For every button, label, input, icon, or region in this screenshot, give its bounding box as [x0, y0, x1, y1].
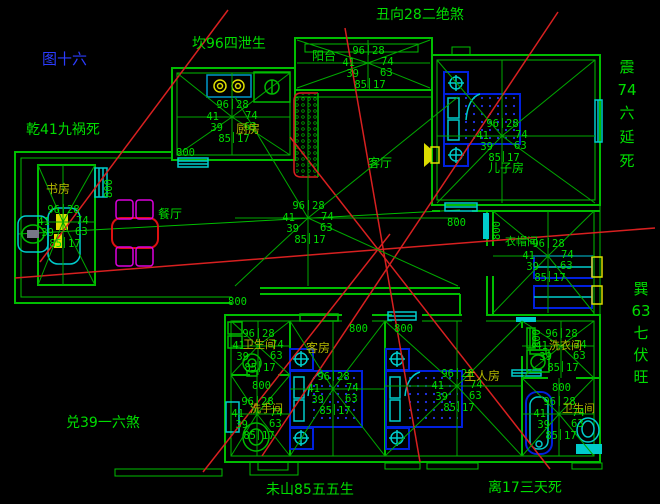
plant-strip: [294, 93, 318, 177]
top-wall-step: [452, 47, 470, 55]
room-label-study: 书房: [46, 181, 70, 196]
star-number-kitchen: 96: [216, 99, 229, 111]
star-number-bath_a: 85: [244, 362, 257, 374]
compass-label-right-upper: 延: [619, 128, 634, 146]
door-width-label: 800: [531, 329, 543, 348]
door-width-label: 800: [252, 380, 271, 392]
star-number-closet: 85: [534, 272, 547, 284]
door-width-label: 800: [491, 221, 503, 240]
dining-table: [112, 218, 158, 248]
star-number-master: 17: [462, 402, 475, 414]
star-number-bath_br: 85: [545, 430, 558, 442]
door-width-label: 800: [103, 179, 115, 198]
figure-number: 图十六: [42, 50, 87, 68]
room-label-closet: 衣帽间: [505, 234, 538, 248]
nightstand-lamp-icon: [444, 144, 468, 166]
room-label-master: 主人房: [464, 368, 500, 383]
compass-label-right-lower: 旺: [633, 368, 648, 386]
compass-label-top-left: 坎96四泄生: [192, 36, 266, 52]
door-width-label: 800: [394, 323, 413, 335]
compass-label-bottom-center: 未山85五五生: [266, 482, 354, 498]
star-number-living: 96: [292, 200, 305, 212]
stove-icon: [207, 75, 251, 97]
star-number-living: 63: [320, 222, 333, 234]
living-bottom-wall: [260, 288, 460, 315]
star-number-living: 85: [294, 234, 307, 246]
porch-ledge-2: [427, 463, 478, 469]
star-number-master: 96: [441, 368, 454, 380]
closet-right-wall: [594, 205, 600, 315]
compass-label-right-lower: 伏: [633, 346, 648, 364]
room-label-laundry: 洗衣间: [549, 338, 582, 352]
door-width-label: 800: [176, 147, 195, 159]
room-label-bath-a: 卫生间: [243, 337, 276, 351]
compass-label-right-upper: 六: [619, 104, 634, 122]
door-width-label: 800: [228, 296, 247, 308]
star-number-bath_br: 96: [543, 396, 556, 408]
star-number-master: 85: [443, 402, 456, 414]
nightstand-lamp-icon: [386, 349, 409, 370]
star-number-bath_a: 17: [263, 362, 276, 374]
compass-label-bottom-right: 离17三天死: [488, 479, 562, 496]
compass-label-left: 乾41九祸死: [26, 122, 100, 138]
star-number-balcony: 96: [352, 45, 365, 57]
porch-ledge-4: [115, 469, 222, 476]
compass-label-right-lower: 63: [631, 302, 650, 320]
window-icon: [388, 312, 416, 320]
floorplan-canvas: 9628417439638517962841743963851796284174…: [0, 0, 660, 504]
star-number-bath_b: 17: [262, 430, 275, 442]
door-panel: [483, 213, 489, 239]
star-number-son: 63: [514, 140, 527, 152]
compass-label-top: 丑向28二绝煞: [376, 7, 464, 23]
nightstand-lamp-icon: [386, 428, 409, 449]
room-label-balcony: 阳台: [312, 48, 336, 63]
star-number-master: 63: [469, 390, 482, 402]
floorplan-drawing: 9628417439638517962841743963851796284174…: [0, 0, 660, 504]
star-number-bath_b: 63: [269, 418, 282, 430]
compass-label-right-upper: 74: [617, 81, 636, 99]
compass-label-right-lower: 七: [633, 324, 648, 342]
compass-label-right-upper: 死: [619, 152, 634, 170]
star-number-guest: 17: [338, 405, 351, 417]
compass-label-bottom-left: 兑39一六煞: [66, 415, 140, 431]
wardrobe: [534, 286, 602, 308]
star-number-guest: 96: [317, 371, 330, 383]
room-label-bath-b: 洗手间: [250, 401, 283, 415]
star-number-study: 17: [68, 238, 81, 250]
star-number-balcony: 85: [354, 79, 367, 91]
star-number-bath_br: 63: [571, 418, 584, 430]
star-number-study: 96: [47, 204, 60, 216]
door-width-label: 800: [349, 323, 368, 335]
star-number-study: 85: [49, 238, 62, 250]
star-number-bath_b: 85: [243, 430, 256, 442]
compass-label-right-lower: 巽: [633, 280, 648, 298]
dining-chairs: [116, 200, 153, 266]
star-number-closet: 63: [560, 260, 573, 272]
star-number-balcony: 63: [380, 67, 393, 79]
star-number-study: 63: [75, 226, 88, 238]
room-label-son: 儿子房: [488, 160, 524, 175]
compass-label-right-upper: 震: [619, 58, 634, 76]
room-label-kitchen: 厨房: [236, 121, 260, 136]
room-label-living: 客厅: [368, 155, 392, 170]
star-spoke-closet: [493, 256, 548, 313]
porch-ledge-3: [572, 463, 602, 469]
room-label-dining: 餐厅: [158, 206, 182, 221]
star-number-bath_br: 17: [564, 430, 577, 442]
door-panel: [516, 317, 536, 322]
star-number-closet: 17: [553, 272, 566, 284]
star-number-living: 17: [313, 234, 326, 246]
porch-ledge-1: [385, 463, 420, 469]
star-number-laundry: 17: [566, 362, 579, 374]
room-label-bath-br: 卫生间: [562, 401, 595, 415]
star-number-son: 96: [486, 118, 499, 130]
star-number-guest: 85: [319, 405, 332, 417]
porch-step-outer: [250, 462, 298, 475]
room-label-guest: 客房: [306, 340, 330, 355]
star-number-balcony: 17: [373, 79, 386, 91]
star-number-guest: 63: [345, 393, 358, 405]
porch-step-inner: [258, 462, 288, 470]
nightstand-lamp-icon: [444, 72, 468, 94]
star-number-kitchen: 85: [218, 133, 231, 145]
star-number-laundry: 85: [547, 362, 560, 374]
door-width-label: 800: [552, 382, 571, 394]
door-width-label: 800: [447, 217, 466, 229]
star-number-bath_a: 63: [270, 350, 283, 362]
